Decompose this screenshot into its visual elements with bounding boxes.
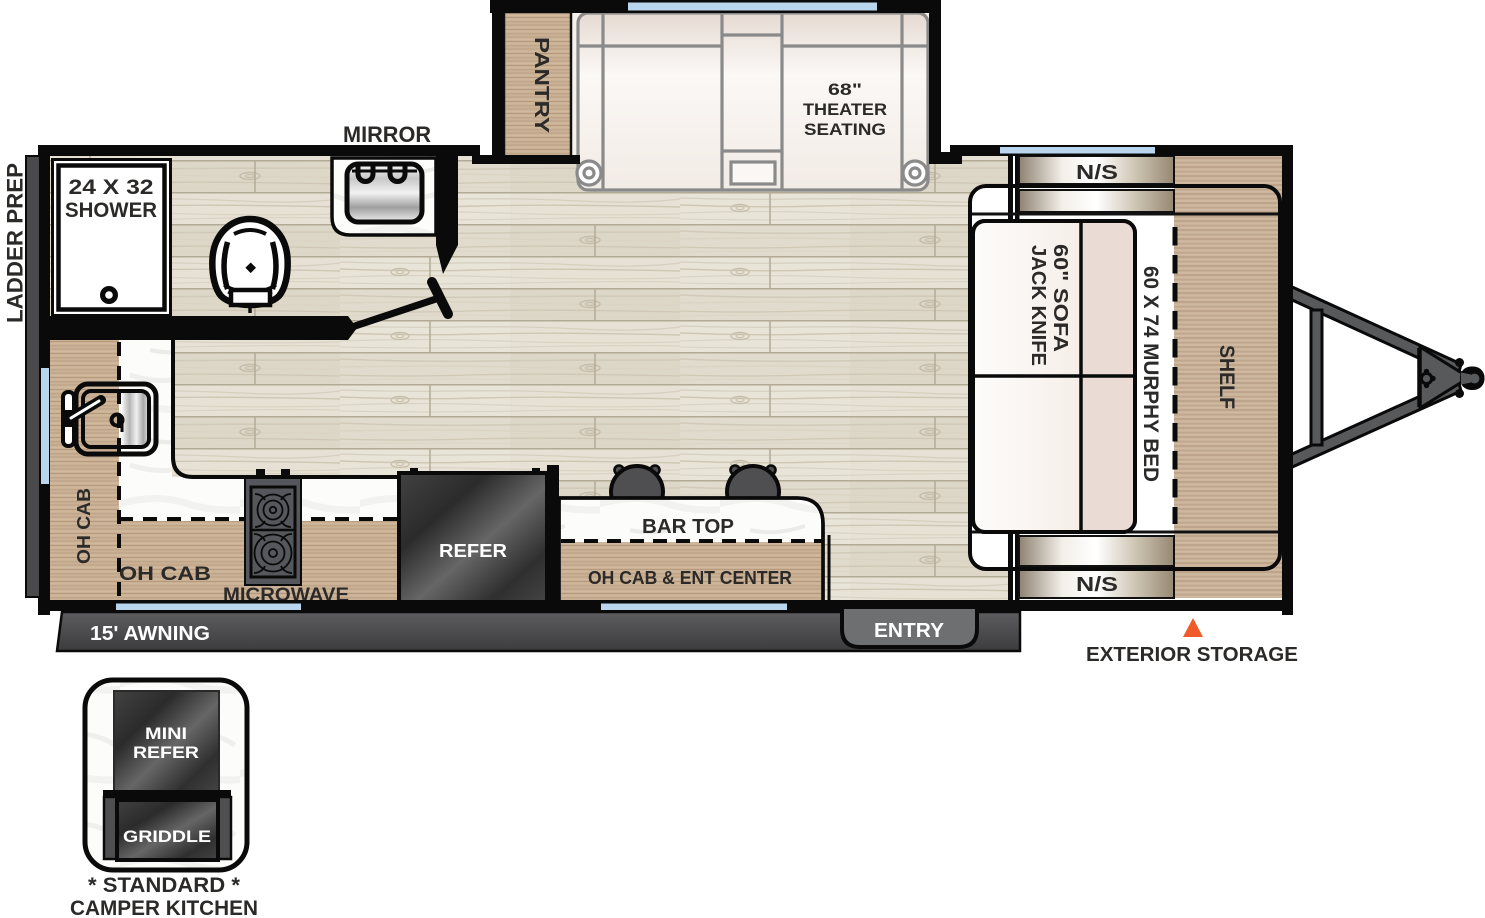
svg-text:N/S: N/S bbox=[1076, 573, 1118, 596]
svg-text:LADDER PREP: LADDER PREP bbox=[3, 163, 28, 323]
svg-text:SHELF: SHELF bbox=[1215, 345, 1238, 409]
svg-text:60" SOFA: 60" SOFA bbox=[1049, 244, 1071, 352]
svg-text:24 X 32: 24 X 32 bbox=[69, 176, 154, 199]
svg-text:BAR TOP: BAR TOP bbox=[642, 516, 734, 538]
svg-text:60 X 74 MURPHY BED: 60 X 74 MURPHY BED bbox=[1139, 266, 1162, 482]
svg-text:OH CAB: OH CAB bbox=[74, 488, 94, 564]
svg-text:68": 68" bbox=[828, 80, 862, 99]
svg-text:SEATING: SEATING bbox=[804, 120, 886, 139]
svg-text:REFER: REFER bbox=[133, 743, 199, 762]
svg-text:MIRROR: MIRROR bbox=[343, 122, 431, 147]
svg-text:REFER: REFER bbox=[439, 541, 507, 561]
svg-text:OH CAB & ENT CENTER: OH CAB & ENT CENTER bbox=[588, 567, 792, 588]
svg-text:PANTRY: PANTRY bbox=[530, 37, 552, 134]
svg-text:EXTERIOR STORAGE: EXTERIOR STORAGE bbox=[1086, 643, 1298, 666]
svg-text:SHOWER: SHOWER bbox=[65, 199, 157, 222]
svg-text:15' AWNING: 15' AWNING bbox=[90, 623, 210, 645]
svg-text:OH CAB: OH CAB bbox=[119, 564, 211, 585]
svg-text:CAMPER KITCHEN: CAMPER KITCHEN bbox=[70, 897, 258, 918]
svg-text:MINI: MINI bbox=[145, 724, 187, 743]
svg-text:* STANDARD *: * STANDARD * bbox=[88, 874, 241, 897]
svg-text:ENTRY: ENTRY bbox=[874, 620, 945, 642]
svg-text:N/S: N/S bbox=[1076, 161, 1118, 184]
svg-text:THEATER: THEATER bbox=[803, 100, 887, 119]
svg-text:GRIDDLE: GRIDDLE bbox=[123, 827, 211, 846]
svg-text:JACK KNIFE: JACK KNIFE bbox=[1027, 245, 1049, 366]
